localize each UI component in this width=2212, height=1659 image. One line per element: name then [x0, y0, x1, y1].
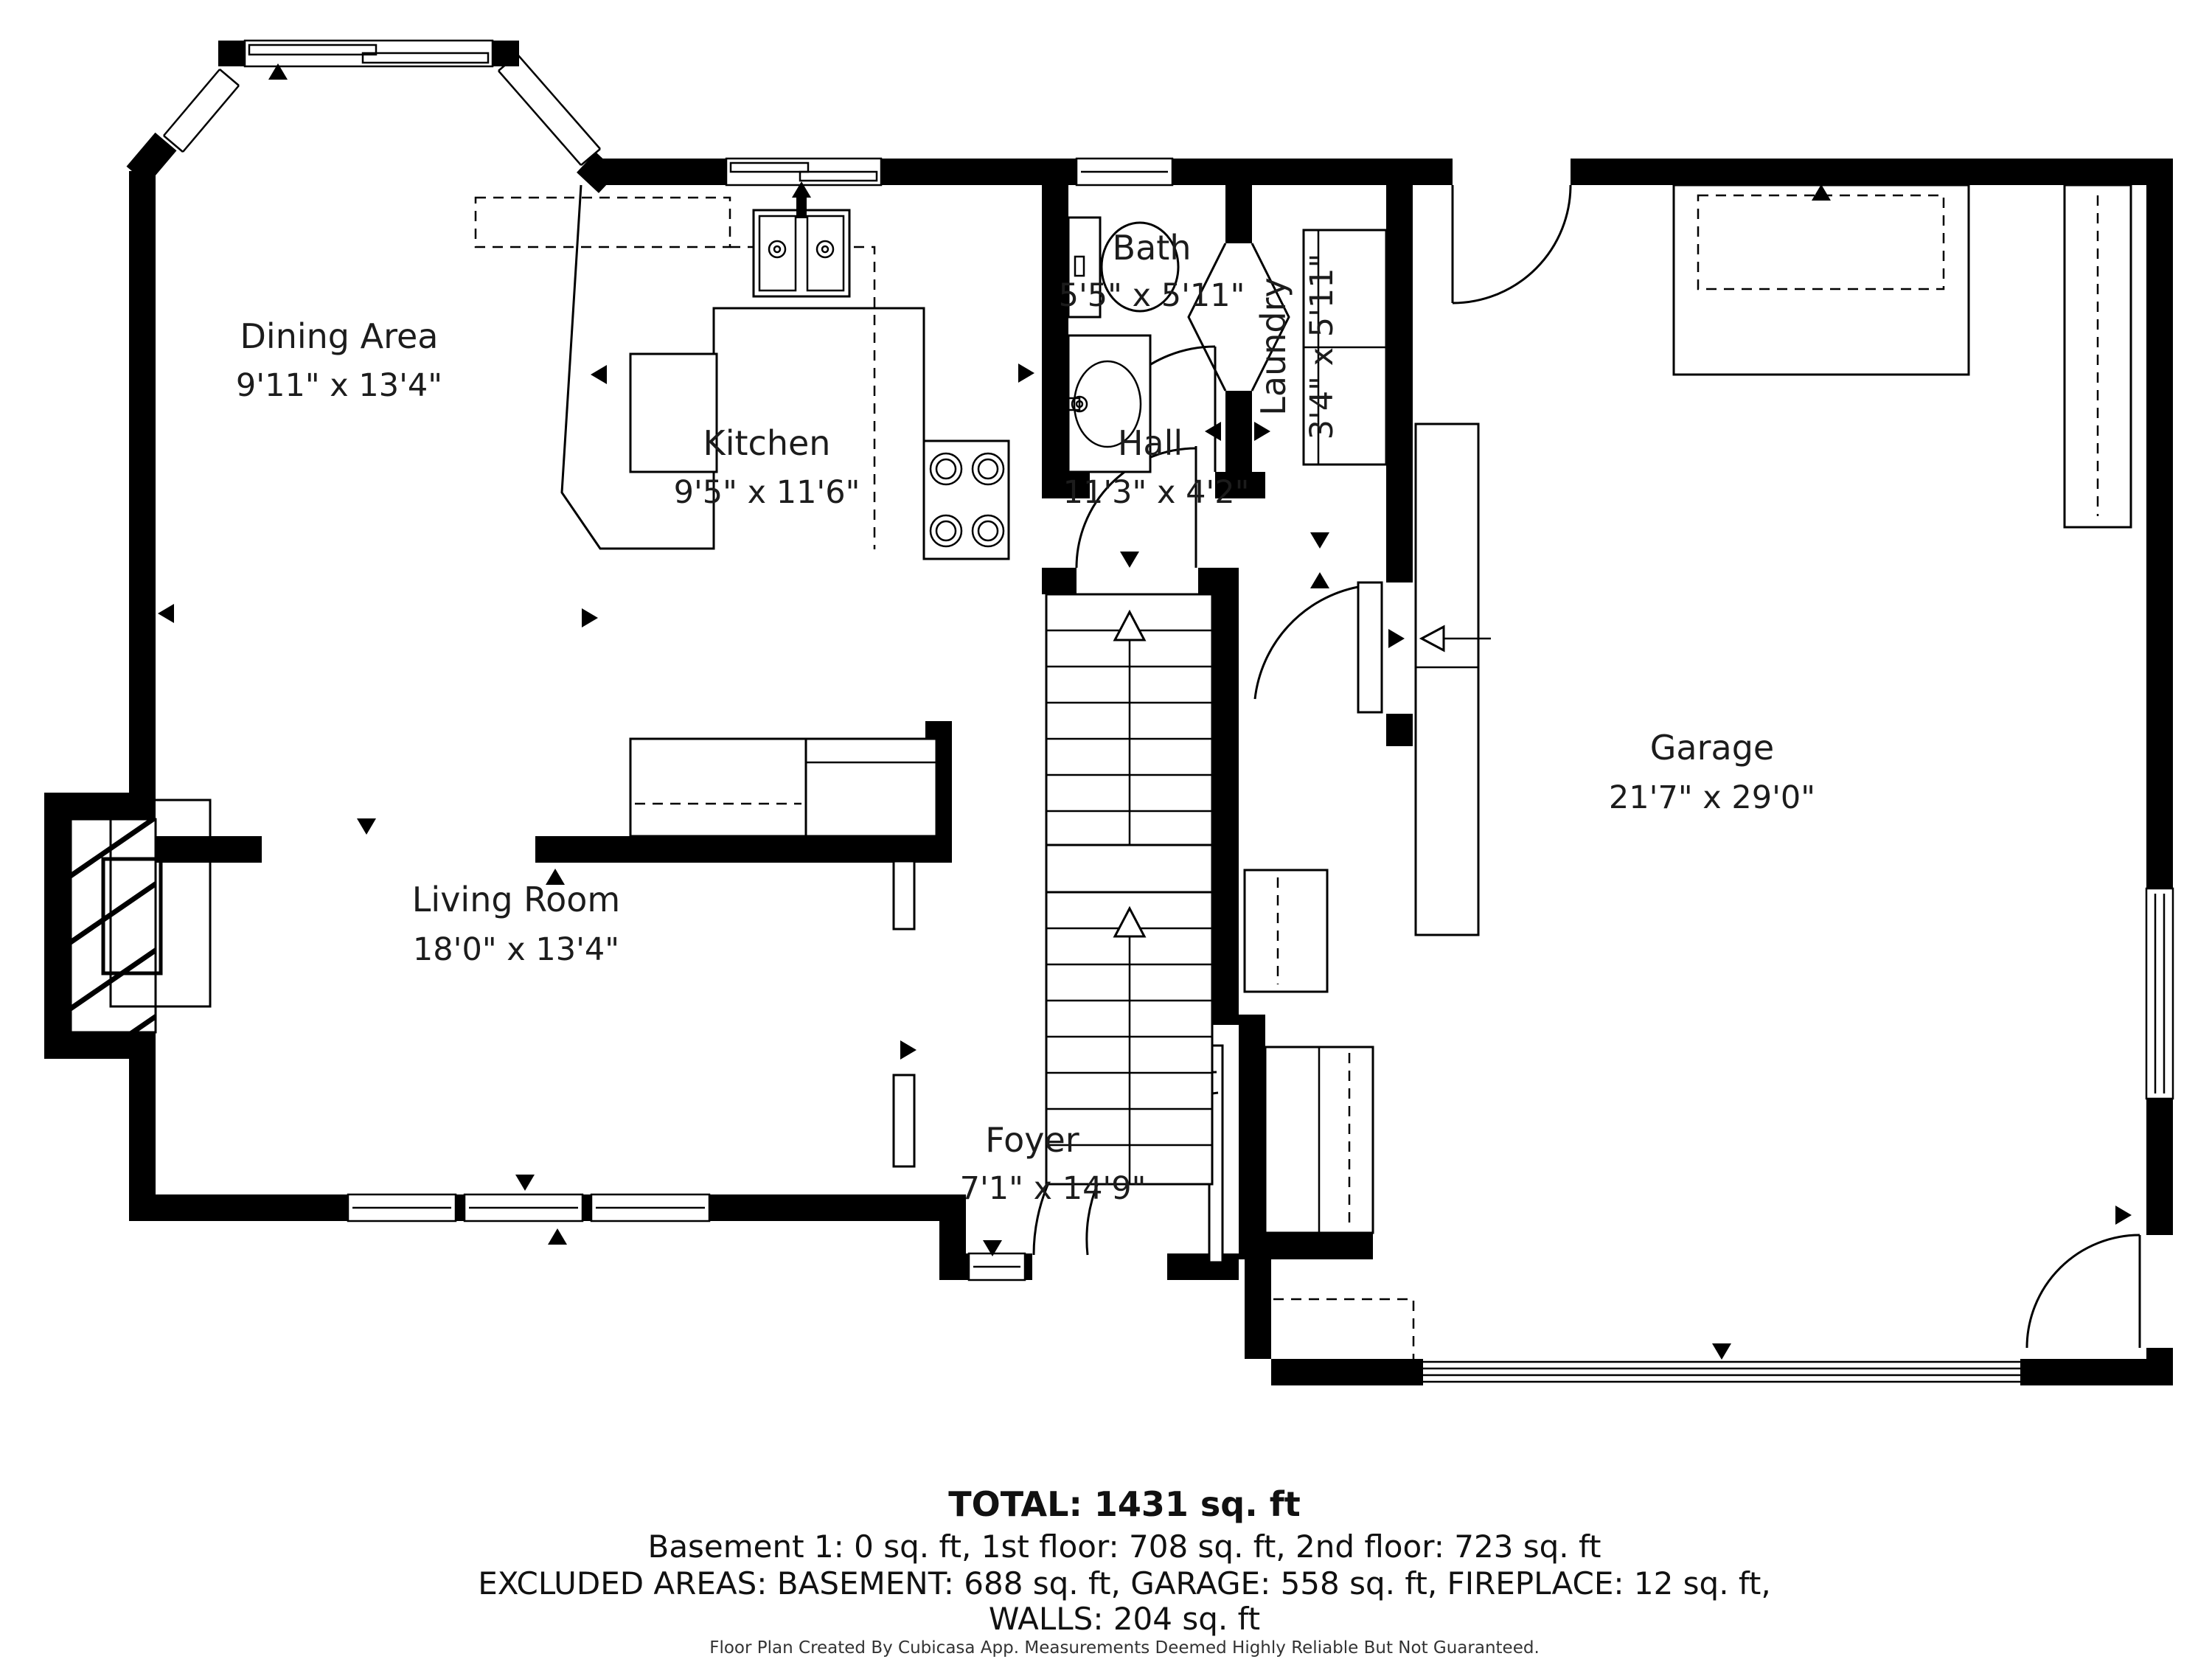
garage-label: Garage — [1650, 728, 1774, 768]
garage-vehicle-door — [1423, 1359, 2020, 1385]
fireplace-outer-wall — [44, 793, 71, 1059]
bath-dims: 5'5" x 5'11" — [1059, 277, 1245, 314]
wall-divider-main — [535, 836, 952, 863]
floors-area-text: Basement 1: 0 sq. ft, 1st floor: 708 sq.… — [648, 1528, 1601, 1565]
stove-frame — [924, 441, 1009, 559]
wall-stair-right — [1212, 594, 1239, 1025]
kitchen-label: Kitchen — [703, 423, 831, 463]
bay-window — [137, 41, 608, 183]
wall-marker-icon — [158, 604, 174, 623]
garage-step-shelf — [1245, 870, 1327, 992]
wall-divider-left-stub — [156, 836, 262, 863]
garage-service-door-opening — [1453, 159, 1571, 185]
stairs-landing — [1046, 845, 1212, 892]
living-label: Living Room — [412, 880, 620, 919]
bay-window-right-glass — [498, 55, 600, 165]
hall-label: Hall — [1118, 423, 1183, 463]
wall-top-laundry — [1252, 159, 1413, 185]
walls-area-text: WALLS: 204 sq. ft — [989, 1601, 1260, 1637]
peninsula-counter-right — [806, 739, 936, 836]
garage-service-door-arc — [1453, 185, 1571, 303]
laundry-opening-marker-icon — [1310, 532, 1329, 549]
garage-back-door-opening — [2146, 1235, 2173, 1348]
laundry-label: Laundry — [1253, 277, 1293, 415]
stair-door-opening — [1077, 568, 1198, 594]
back-door-marker-icon — [2115, 1206, 2132, 1225]
stove — [924, 441, 1009, 559]
laundry-dims: 3'4" x 5'11" — [1304, 254, 1340, 440]
foyer-opening-marker-icon — [900, 1040, 917, 1060]
hall-dims: 11'3" x 4'2" — [1063, 474, 1250, 511]
staircase — [1046, 594, 1212, 1184]
closet-bifold-opening — [1225, 243, 1252, 391]
summary-block: TOTAL: 1431 sq. ft Basement 1: 0 sq. ft,… — [478, 1484, 1771, 1658]
bifold-door-bath-side — [1189, 243, 1225, 391]
wall-porch — [1245, 1259, 1271, 1359]
laundry-opening-marker-icon — [1310, 572, 1329, 588]
bay-post-right — [493, 41, 519, 66]
bay-wall-stub-left — [137, 142, 166, 175]
bifold-marker-icon — [1254, 422, 1270, 441]
wall-marker-icon — [582, 608, 598, 627]
wall-foyer-right — [1239, 1015, 1265, 1259]
hall-garage-door-leaf — [1358, 582, 1382, 712]
porch-outline-dashed — [1273, 1299, 1413, 1359]
sink-frame — [754, 210, 849, 296]
kitchen-sink — [754, 181, 849, 296]
footer-disclaimer-text: Floor Plan Created By Cubicasa App. Meas… — [709, 1638, 1540, 1658]
wall-left-upper — [129, 171, 156, 793]
fireplace — [15, 737, 210, 1150]
total-area-text: TOTAL: 1431 sq. ft — [948, 1484, 1300, 1524]
cased-opening-stub-lower — [894, 1075, 914, 1166]
hall-garage-door-arc — [1255, 587, 1358, 699]
window-marker-icon — [548, 1228, 567, 1245]
opening-marker-icon — [357, 818, 376, 835]
wall-bath-left — [1042, 185, 1068, 472]
cased-opening-stub-upper — [894, 861, 914, 929]
wall-right-garage — [2146, 159, 2173, 1385]
wall-closet-bottom — [1239, 1233, 1373, 1259]
bay-window-left-glass — [164, 69, 239, 152]
laundry-opening — [1265, 472, 1386, 498]
garage-right-window — [2146, 888, 2173, 1099]
garage-back-door-arc — [2027, 1235, 2140, 1348]
peninsula-counter-left — [630, 739, 806, 836]
window-marker-icon — [515, 1175, 535, 1191]
garage-left-shelf — [1416, 424, 1478, 935]
living-dims: 18'0" x 13'4" — [413, 931, 619, 968]
dining-dims: 9'11" x 13'4" — [236, 367, 442, 404]
garage-door-marker-icon — [1712, 1343, 1731, 1360]
foyer-label: Foyer — [985, 1120, 1079, 1160]
garage-dims: 21'7" x 29'0" — [1609, 779, 1815, 816]
kitchen-dims: 9'5" x 11'6" — [674, 474, 860, 511]
fireplace-arm-bottom — [44, 1032, 156, 1059]
front-door-opening — [1032, 1253, 1167, 1280]
garage-workbench — [1674, 185, 1969, 375]
bath-label: Bath — [1113, 228, 1192, 268]
upper-cabinets-dashed — [476, 198, 730, 247]
living-triple-window — [348, 1194, 709, 1221]
bifold-marker-icon — [1205, 422, 1221, 441]
floor-plan-canvas: Dining Area 9'11" x 13'4" Kitchen 9'5" x… — [0, 0, 2212, 1659]
foyer-dims: 7'1" x 14'9" — [960, 1170, 1147, 1207]
hall-garage-door-opening — [1386, 582, 1413, 714]
bay-post-left — [218, 41, 245, 66]
dining-label: Dining Area — [240, 316, 439, 356]
wall-marker-icon — [591, 365, 607, 384]
bay-wall-stub-right — [586, 162, 608, 183]
excluded-area-text: EXCLUDED AREAS: BASEMENT: 688 sq. ft, GA… — [478, 1565, 1771, 1601]
stair-marker-icon — [1120, 552, 1139, 568]
wall-marker-icon — [1018, 364, 1034, 383]
